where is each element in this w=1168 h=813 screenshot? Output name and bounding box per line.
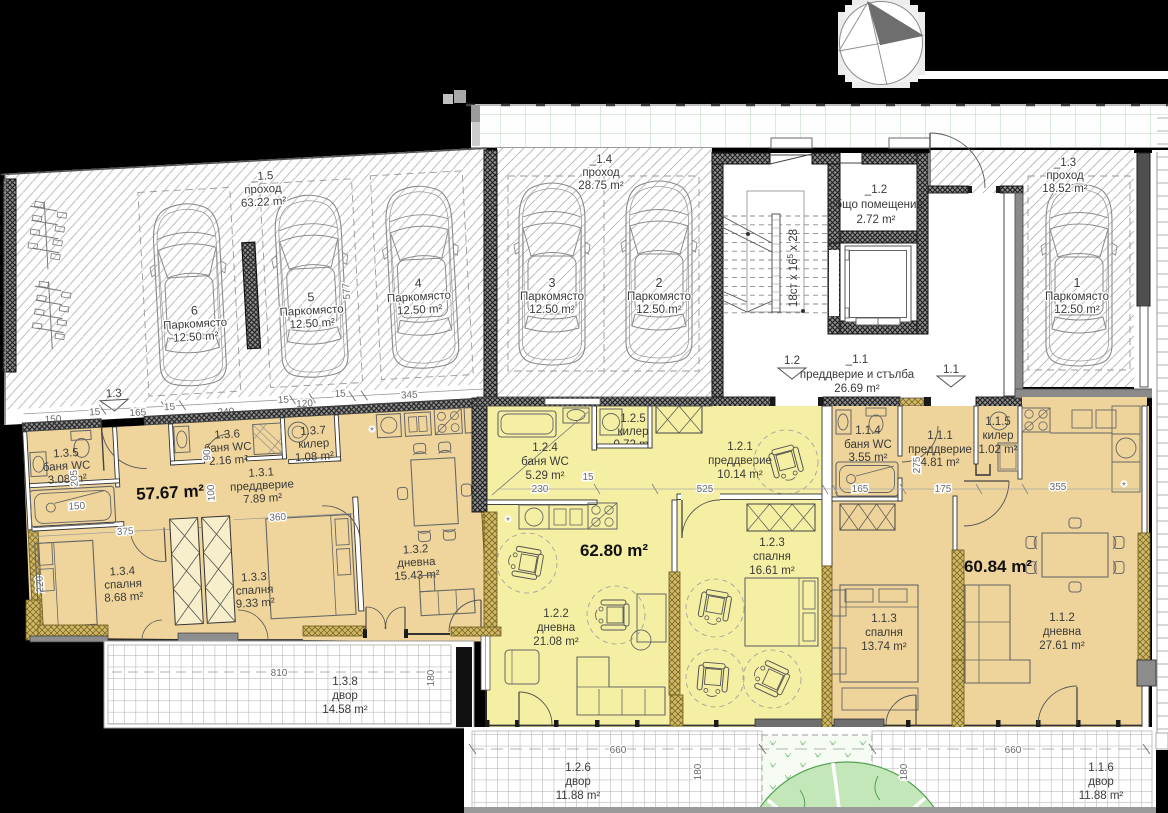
svg-text:килер: килер [618, 426, 649, 438]
svg-text:180: 180 [899, 763, 910, 780]
svg-text:1.1.4: 1.1.4 [855, 425, 881, 437]
svg-text:100: 100 [206, 484, 218, 502]
svg-text:Паркомясто: Паркомясто [520, 291, 584, 303]
svg-text:1.3.5: 1.3.5 [53, 447, 79, 460]
svg-text:90: 90 [202, 449, 214, 461]
svg-text:12.50 m²: 12.50 m² [397, 303, 443, 317]
svg-text:дневна: дневна [1043, 626, 1082, 638]
svg-text:1.1.1: 1.1.1 [927, 430, 953, 442]
svg-text:проход: проход [244, 183, 282, 197]
svg-text:205: 205 [69, 469, 81, 487]
svg-text:1.1.5: 1.1.5 [985, 416, 1011, 428]
svg-text:проход: проход [582, 167, 620, 179]
svg-text:1.2.4: 1.2.4 [532, 442, 558, 454]
svg-text:2: 2 [656, 276, 663, 290]
svg-text:2.16 m²: 2.16 m² [209, 454, 249, 468]
svg-text:1.3.7: 1.3.7 [300, 425, 326, 438]
svg-text:*: * [1122, 481, 1126, 492]
svg-text:577: 577 [341, 282, 353, 300]
svg-text:преддверие: преддверие [908, 444, 972, 456]
svg-text:16.61 m²: 16.61 m² [749, 565, 795, 577]
svg-text:1.3.4: 1.3.4 [109, 565, 136, 578]
svg-text:62.80 m²: 62.80 m² [580, 541, 648, 560]
svg-text:15: 15 [164, 402, 176, 414]
svg-text:15: 15 [278, 395, 290, 407]
svg-text:преддверие: преддверие [708, 455, 772, 467]
svg-text:6: 6 [191, 303, 199, 317]
svg-text:9.33 m²: 9.33 m² [236, 597, 276, 611]
svg-text:660: 660 [610, 745, 627, 756]
svg-text:5.29 m²: 5.29 m² [526, 470, 565, 482]
svg-text:килер: килер [983, 430, 1014, 442]
svg-text:1.3.3: 1.3.3 [241, 571, 267, 584]
svg-text:*: * [370, 426, 375, 437]
svg-text:375: 375 [117, 526, 135, 538]
svg-text:1.02 m²: 1.02 m² [979, 444, 1018, 456]
svg-text:спалня: спалня [235, 584, 273, 598]
svg-text:дневна: дневна [397, 556, 437, 570]
svg-text:спалня: спалня [865, 627, 903, 639]
svg-text:360: 360 [269, 512, 287, 524]
svg-text:12.50 m²: 12.50 m² [529, 304, 575, 316]
svg-text:Паркомясто: Паркомясто [627, 291, 691, 303]
svg-text:1.1.3: 1.1.3 [871, 613, 897, 625]
svg-text:двор: двор [565, 776, 590, 788]
svg-text:1.3.2: 1.3.2 [403, 543, 429, 556]
svg-text:12.50 m²: 12.50 m² [636, 304, 682, 316]
svg-text:12.50 m²: 12.50 m² [173, 330, 219, 344]
svg-text:1.3.8: 1.3.8 [332, 676, 358, 688]
svg-text:3.55 m²: 3.55 m² [849, 452, 888, 464]
svg-text:1.08 m²: 1.08 m² [295, 450, 335, 464]
svg-text:525: 525 [697, 484, 714, 495]
svg-text:3.08 m²: 3.08 m² [48, 473, 88, 487]
svg-text:*: * [506, 516, 510, 527]
svg-text:12.50 m²: 12.50 m² [289, 317, 335, 331]
svg-text:_1.3: _1.3 [1053, 157, 1076, 169]
svg-text:спалня: спалня [104, 578, 142, 592]
svg-text:1.2: 1.2 [784, 355, 800, 367]
svg-text:15.43 m²: 15.43 m² [394, 569, 440, 583]
svg-text:1.3: 1.3 [105, 388, 122, 401]
svg-text:11.88 m²: 11.88 m² [1079, 790, 1124, 802]
svg-text:355: 355 [1050, 482, 1067, 493]
svg-text:_1.5: _1.5 [250, 170, 274, 183]
svg-text:63.22 m²: 63.22 m² [241, 195, 287, 209]
svg-text:15: 15 [89, 407, 101, 419]
svg-text:Паркомясто: Паркомясто [1045, 291, 1109, 303]
svg-text:57.67 m²: 57.67 m² [136, 481, 205, 504]
svg-text:дневна: дневна [537, 622, 576, 634]
svg-text:28.75 m²: 28.75 m² [578, 180, 624, 192]
svg-text:8.68 m²: 8.68 m² [104, 591, 144, 605]
svg-text:двор: двор [1088, 776, 1113, 788]
svg-text:1.3.1: 1.3.1 [248, 466, 274, 479]
svg-text:5: 5 [307, 290, 315, 304]
svg-text:двор: двор [332, 690, 357, 702]
svg-text:баня WC: баня WC [844, 439, 892, 451]
svg-text:15: 15 [582, 472, 594, 483]
svg-text:345: 345 [401, 390, 419, 402]
svg-text:230: 230 [532, 484, 549, 495]
svg-text:14.58 m²: 14.58 m² [322, 704, 368, 716]
svg-text:165: 165 [852, 484, 869, 495]
svg-text:60.84 m²: 60.84 m² [964, 557, 1032, 576]
svg-text:общо помещение: общо помещение [829, 199, 923, 211]
svg-text:_1.1: _1.1 [845, 354, 868, 366]
svg-text:1.3.6: 1.3.6 [214, 428, 240, 441]
svg-text:1.1.2: 1.1.2 [1049, 612, 1075, 624]
svg-text:18ст х 165 х 28: 18ст х 165 х 28 [786, 229, 800, 307]
svg-text:4.81 m²: 4.81 m² [921, 457, 960, 469]
svg-text:баня WC: баня WC [521, 456, 569, 468]
svg-text:1.1: 1.1 [943, 364, 959, 376]
svg-text:спалня: спалня [753, 551, 791, 563]
svg-text:26.69 m²: 26.69 m² [834, 383, 880, 395]
svg-text:1.2.6: 1.2.6 [565, 762, 591, 774]
svg-text:660: 660 [1005, 745, 1022, 756]
svg-text:1.1.6: 1.1.6 [1088, 762, 1114, 774]
svg-text:килер: килер [298, 437, 330, 451]
svg-text:1.2.3: 1.2.3 [759, 537, 785, 549]
svg-text:3: 3 [549, 276, 556, 290]
svg-text:15: 15 [334, 388, 346, 400]
svg-text:21.08 m²: 21.08 m² [533, 636, 579, 648]
svg-text:27.61 m²: 27.61 m² [1039, 640, 1085, 652]
svg-text:4: 4 [414, 276, 422, 290]
svg-text:10.14 m²: 10.14 m² [717, 469, 763, 481]
svg-text:1.2.2: 1.2.2 [543, 608, 569, 620]
svg-text:18.52 m²: 18.52 m² [1042, 183, 1088, 195]
svg-text:11.88 m²: 11.88 m² [556, 790, 601, 802]
svg-text:проход: проход [1046, 170, 1084, 182]
svg-text:_1.2: _1.2 [864, 184, 887, 196]
svg-text:275: 275 [912, 456, 923, 473]
svg-text:7.89 m²: 7.89 m² [243, 492, 283, 506]
svg-text:175: 175 [935, 484, 952, 495]
svg-text:13.74 m²: 13.74 m² [861, 641, 907, 653]
svg-text:12.50 m²: 12.50 m² [1054, 304, 1100, 316]
svg-text:180: 180 [426, 669, 437, 686]
svg-text:_1.4: _1.4 [589, 154, 613, 166]
svg-text:810: 810 [271, 668, 288, 679]
svg-text:180: 180 [693, 763, 704, 780]
svg-text:1.2.1: 1.2.1 [727, 441, 753, 453]
svg-text:1: 1 [1074, 276, 1081, 290]
svg-text:150: 150 [68, 501, 86, 513]
svg-text:1.2.5: 1.2.5 [620, 413, 646, 425]
svg-text:преддверие и стълба: преддверие и стълба [800, 369, 915, 381]
svg-text:2.72 m²: 2.72 m² [857, 214, 896, 226]
